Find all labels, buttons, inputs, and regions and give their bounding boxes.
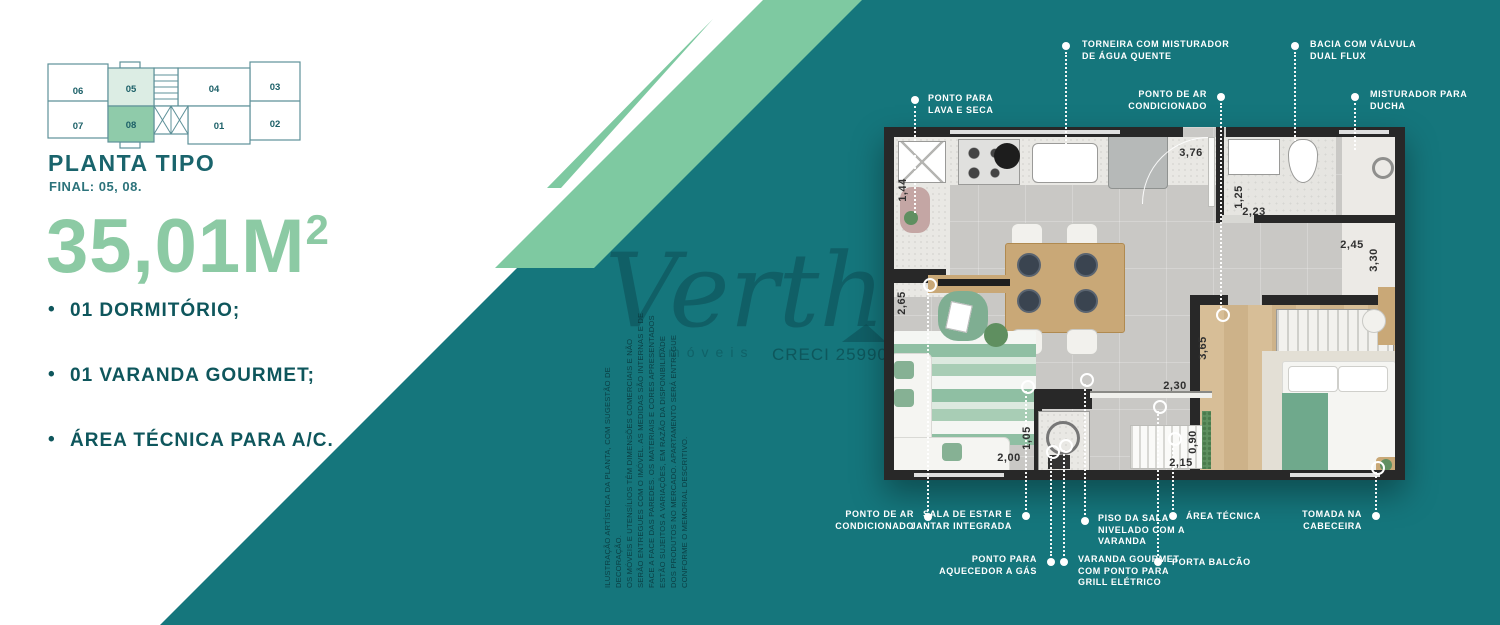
bedroom-window: [1290, 473, 1380, 477]
plan-type-subtitle: FINAL: 05, 08.: [49, 179, 142, 194]
bathroom-wall-left: [1216, 127, 1224, 223]
bedroom-wall-top-a: [1200, 295, 1228, 305]
keyplan-unit-label: 06: [73, 86, 84, 97]
place-setting: [1074, 289, 1098, 313]
feature-item: ÁREA TÉCNICA PARA A/C.: [48, 430, 334, 452]
disclaimer-line: DOS PRODUTOS NO MERCADO. APARTAMENTO SER…: [668, 312, 679, 588]
tech-area-deck: [1130, 425, 1210, 469]
floor-plan: [884, 127, 1405, 480]
bed-pillow: [1338, 366, 1388, 392]
entrance-door-leaf: [1208, 137, 1215, 207]
disclaimer-text: ILUSTRAÇÃO ARTÍSTICA DA PLANTA, COM SUGE…: [602, 312, 690, 588]
disclaimer-line: OS MÓVEIS E UTENSÍLIOS TÊM DIMENSÕES COM…: [624, 312, 635, 588]
bed-pillow: [1288, 366, 1338, 392]
gourmet-wall: [1034, 389, 1092, 409]
outer-wall-right: [1395, 127, 1405, 480]
disclaimer-line: FACE A FACE DAS PAREDES. OS MATERIAIS E …: [646, 312, 657, 588]
keyplan-unit-label: 02: [270, 119, 281, 130]
gourmet-sink: [1046, 421, 1080, 455]
kitchen-plant: [904, 211, 918, 225]
brochure-canvas: Verth imóveis CRECI 25990 ILUSTRAÇÃO ART…: [0, 0, 1500, 625]
disclaimer-line: CONFORME O MEMORIAL DESCRITIVO.: [679, 312, 690, 588]
place-setting: [1017, 253, 1041, 277]
kitchen-window: [950, 130, 1120, 134]
kitchen-rug: [900, 187, 930, 233]
sofa-pillow: [942, 443, 962, 461]
disclaimer-line: ILUSTRAÇÃO ARTÍSTICA DA PLANTA, COM SUGE…: [602, 312, 624, 588]
keyplan-unit-label: 01: [214, 121, 225, 132]
sofa-pillow: [894, 389, 914, 407]
keyplan-unit-label: 08: [126, 120, 137, 131]
bed-blanket: [1282, 393, 1328, 475]
place-setting: [1017, 289, 1041, 313]
outer-wall-left: [884, 127, 894, 480]
building-key-plan: 06 05 04 03 07 08 01 02: [45, 50, 305, 154]
keyplan-unit-label: 03: [270, 82, 281, 93]
balcony-door-track: [1090, 391, 1212, 398]
keyplan-unit-label: 04: [209, 84, 220, 95]
living-window: [914, 473, 1004, 477]
area-superscript: 2: [306, 206, 330, 253]
disclaimer-line: ESTÃO SUJEITOS A VARIAÇÕES, EM RAZÃO DA …: [657, 312, 668, 588]
shower-head: [1372, 157, 1394, 179]
gourmet-grill: [1048, 455, 1070, 469]
hedge-planter: [1202, 411, 1211, 469]
bathroom-door-gap: [1222, 215, 1254, 223]
watermark-creci: CRECI 25990: [772, 345, 888, 365]
area-headline: 35,01M2: [46, 203, 330, 290]
desk-chair: [1362, 309, 1386, 333]
washer-dryer: [898, 141, 946, 183]
feature-item: 01 VARANDA GOURMET;: [48, 365, 334, 387]
television: [938, 279, 1010, 286]
pouf: [984, 323, 1008, 347]
sofa-pillow: [894, 361, 914, 379]
keyplan-unit-label: 07: [73, 121, 84, 132]
plan-type-title: PLANTA TIPO: [48, 150, 215, 177]
bathroom-vanity: [1228, 139, 1280, 175]
place-setting: [1074, 253, 1098, 277]
feature-item: 01 DORMITÓRIO;: [48, 300, 334, 322]
disclaimer-line: SERÃO ENTREGUES COM O IMÓVEL. AS MEDIDAS…: [635, 312, 646, 588]
kitchen-sink: [1032, 143, 1098, 183]
keyplan-unit-label: 05: [126, 84, 137, 95]
shower-window: [1339, 130, 1389, 134]
dining-chair: [1066, 329, 1098, 355]
cooking-pot: [994, 143, 1020, 169]
feature-list: 01 DORMITÓRIO; 01 VARANDA GOURMET; ÁREA …: [48, 300, 334, 495]
